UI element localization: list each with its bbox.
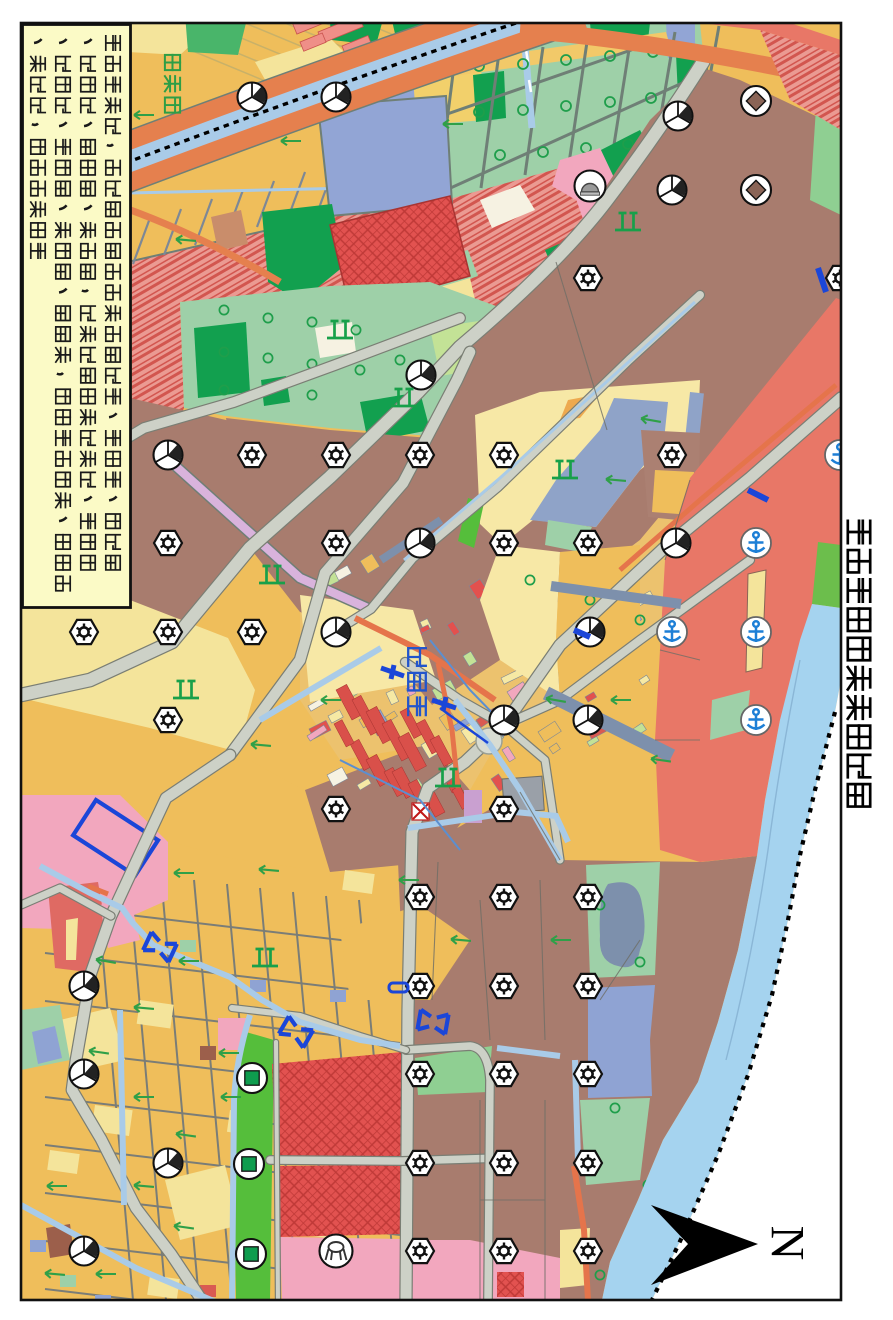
- svg-text:N: N: [761, 1226, 814, 1261]
